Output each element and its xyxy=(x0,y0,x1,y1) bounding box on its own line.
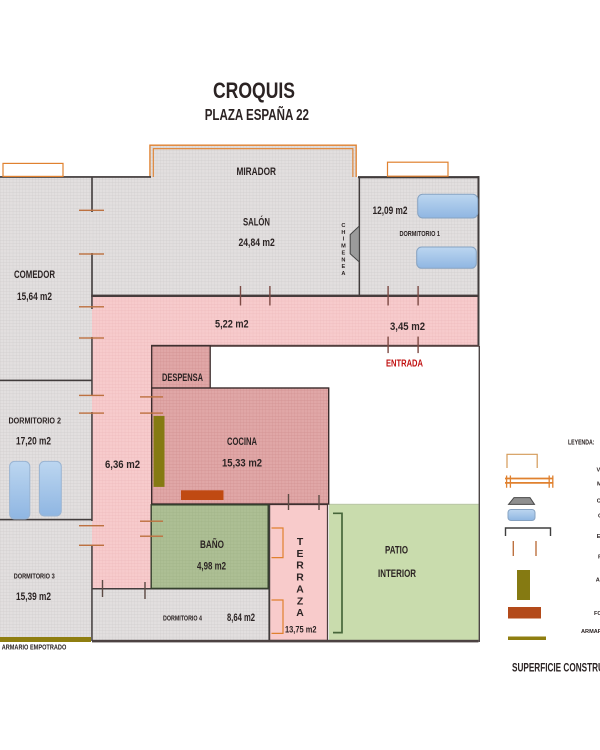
svg-text:17,20 m2: 17,20 m2 xyxy=(16,436,51,448)
svg-text:ENTRADA: ENTRADA xyxy=(386,357,423,369)
svg-text:SALÓN: SALÓN xyxy=(243,215,270,228)
svg-text:3,45 m2: 3,45 m2 xyxy=(390,321,425,333)
svg-text:DESPENSA: DESPENSA xyxy=(162,372,203,384)
svg-text:DORMITORIO 3: DORMITORIO 3 xyxy=(14,574,55,581)
svg-text:FOGONES: FOGONES xyxy=(594,611,600,617)
svg-text:ARMARIO EMPOTRADO: ARMARIO EMPOTRADO xyxy=(581,629,600,635)
svg-text:LEYENDA:: LEYENDA: xyxy=(568,437,595,446)
svg-text:VENTANA: VENTANA xyxy=(597,468,600,474)
svg-text:ARMARIO EMPOTRADO: ARMARIO EMPOTRADO xyxy=(2,645,67,652)
svg-text:TERRAZA: TERRAZA xyxy=(296,537,304,619)
svg-text:DORMITORIO 4: DORMITORIO 4 xyxy=(163,616,202,623)
svg-text:4,98 m2: 4,98 m2 xyxy=(197,560,226,572)
svg-text:SUPERFICIE CONSTRUIDA: SUPERFICIE CONSTRUIDA xyxy=(512,663,600,675)
svg-text:15,33 m2: 15,33 m2 xyxy=(222,458,262,470)
svg-text:BAÑO: BAÑO xyxy=(200,538,224,551)
svg-text:ARMARIO: ARMARIO xyxy=(596,578,600,584)
svg-text:PATIO: PATIO xyxy=(385,544,408,556)
svg-text:PLAZA ESPAÑA 22: PLAZA ESPAÑA 22 xyxy=(205,106,309,124)
svg-text:MIRADOR: MIRADOR xyxy=(237,166,277,178)
svg-text:12,09 m2: 12,09 m2 xyxy=(373,205,408,217)
svg-text:COMEDOR: COMEDOR xyxy=(14,269,55,281)
svg-text:CROQUIS: CROQUIS xyxy=(213,78,295,103)
svg-text:8,64 m2: 8,64 m2 xyxy=(227,612,255,624)
svg-text:INTERIOR: INTERIOR xyxy=(378,568,416,580)
svg-text:24,84 m2: 24,84 m2 xyxy=(239,237,275,249)
svg-text:COCINA: COCINA xyxy=(227,436,257,448)
svg-text:15,39 m2: 15,39 m2 xyxy=(16,591,51,603)
svg-text:DORMITORIO 2: DORMITORIO 2 xyxy=(9,416,62,425)
svg-text:13,75 m2: 13,75 m2 xyxy=(285,624,317,634)
svg-text:6,36 m2: 6,36 m2 xyxy=(105,459,140,471)
svg-text:5,22 m2: 5,22 m2 xyxy=(215,319,249,331)
svg-text:15,64 m2: 15,64 m2 xyxy=(17,291,52,303)
svg-text:DORMITORIO 1: DORMITORIO 1 xyxy=(400,231,441,238)
